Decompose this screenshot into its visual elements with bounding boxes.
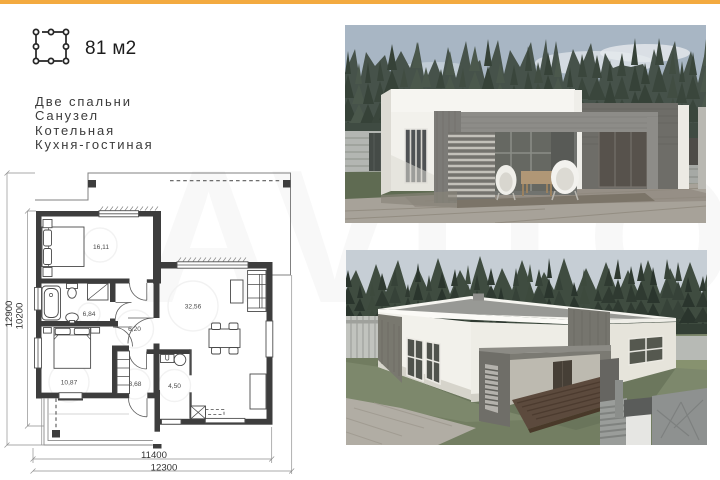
svg-text:4,50: 4,50	[168, 383, 181, 390]
svg-text:16,11: 16,11	[93, 244, 109, 251]
svg-text:32,56: 32,56	[185, 304, 202, 311]
svg-text:12900: 12900	[4, 301, 15, 328]
svg-text:6,84: 6,84	[83, 311, 96, 318]
svg-text:12300: 12300	[151, 463, 178, 474]
svg-text:10200: 10200	[15, 303, 26, 330]
svg-text:3,68: 3,68	[129, 381, 142, 388]
svg-text:6,20: 6,20	[128, 326, 141, 333]
svg-text:11400: 11400	[141, 450, 167, 461]
svg-text:10,87: 10,87	[61, 380, 78, 387]
